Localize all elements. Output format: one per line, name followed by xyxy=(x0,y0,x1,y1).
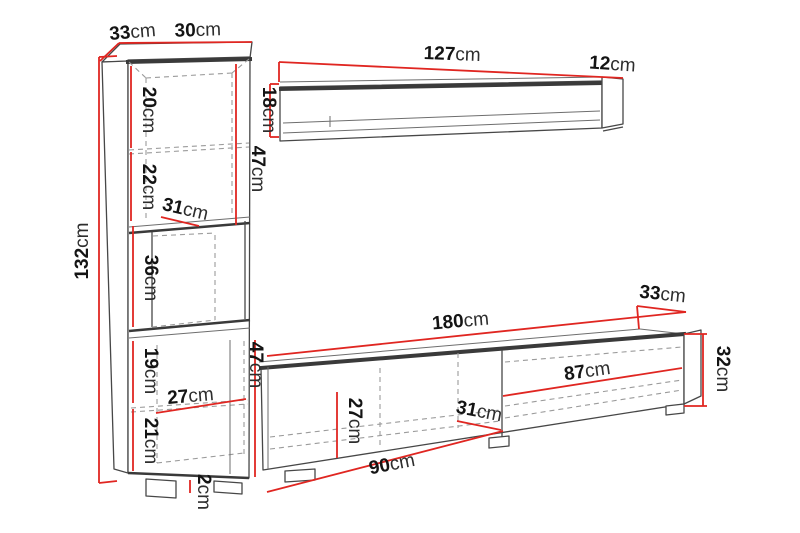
cabinet-section-1-label: 20cm xyxy=(138,87,159,133)
tv-stand-depth-label: 33cm xyxy=(638,282,686,308)
cabinet-foot-height-label: 2cm xyxy=(193,474,214,510)
cabinet-section-4-label: 19cm xyxy=(140,348,161,394)
tall-cabinet-drawing xyxy=(102,42,252,498)
cabinet-inner-width-label: 27cm xyxy=(166,384,214,409)
cabinet-foot xyxy=(214,481,242,494)
cabinet-width-label: 30cm xyxy=(174,19,221,42)
cabinet-section-3-label: 36cm xyxy=(140,255,161,301)
cabinet-section-2-label: 22cm xyxy=(138,164,159,210)
tv-stand-foot xyxy=(666,404,684,415)
tv-stand-foot xyxy=(489,436,509,448)
wall-shelf-depth-label: 12cm xyxy=(588,52,636,76)
cabinet-height-label: 132cm xyxy=(72,222,93,279)
cabinet-upper-inner-height-label: 47cm xyxy=(247,146,268,192)
cabinet-lower-inner-height-label: 47cm xyxy=(245,342,266,388)
wall-shelf-height-label: 18cm xyxy=(258,87,279,133)
tv-stand-length-label: 180cm xyxy=(431,309,490,335)
furniture-dimension-diagram: 33cm 30cm 132cm 20cm 22cm 36cm 19cm 21cm… xyxy=(0,0,800,533)
cabinet-section-5-label: 21cm xyxy=(140,418,161,464)
wall-shelf-drawing xyxy=(280,77,623,141)
tv-stand-inner-height-label: 27cm xyxy=(344,398,365,444)
wall-shelf-length-label: 127cm xyxy=(423,43,481,66)
diagram-canvas: 33cm 30cm 132cm 20cm 22cm 36cm 19cm 21cm… xyxy=(0,0,800,533)
tv-stand-height-label: 32cm xyxy=(712,346,733,392)
cabinet-foot xyxy=(146,479,176,498)
tv-stand-left-inner-width-label: 90cm xyxy=(367,450,417,479)
cabinet-depth-label: 33cm xyxy=(108,20,156,45)
